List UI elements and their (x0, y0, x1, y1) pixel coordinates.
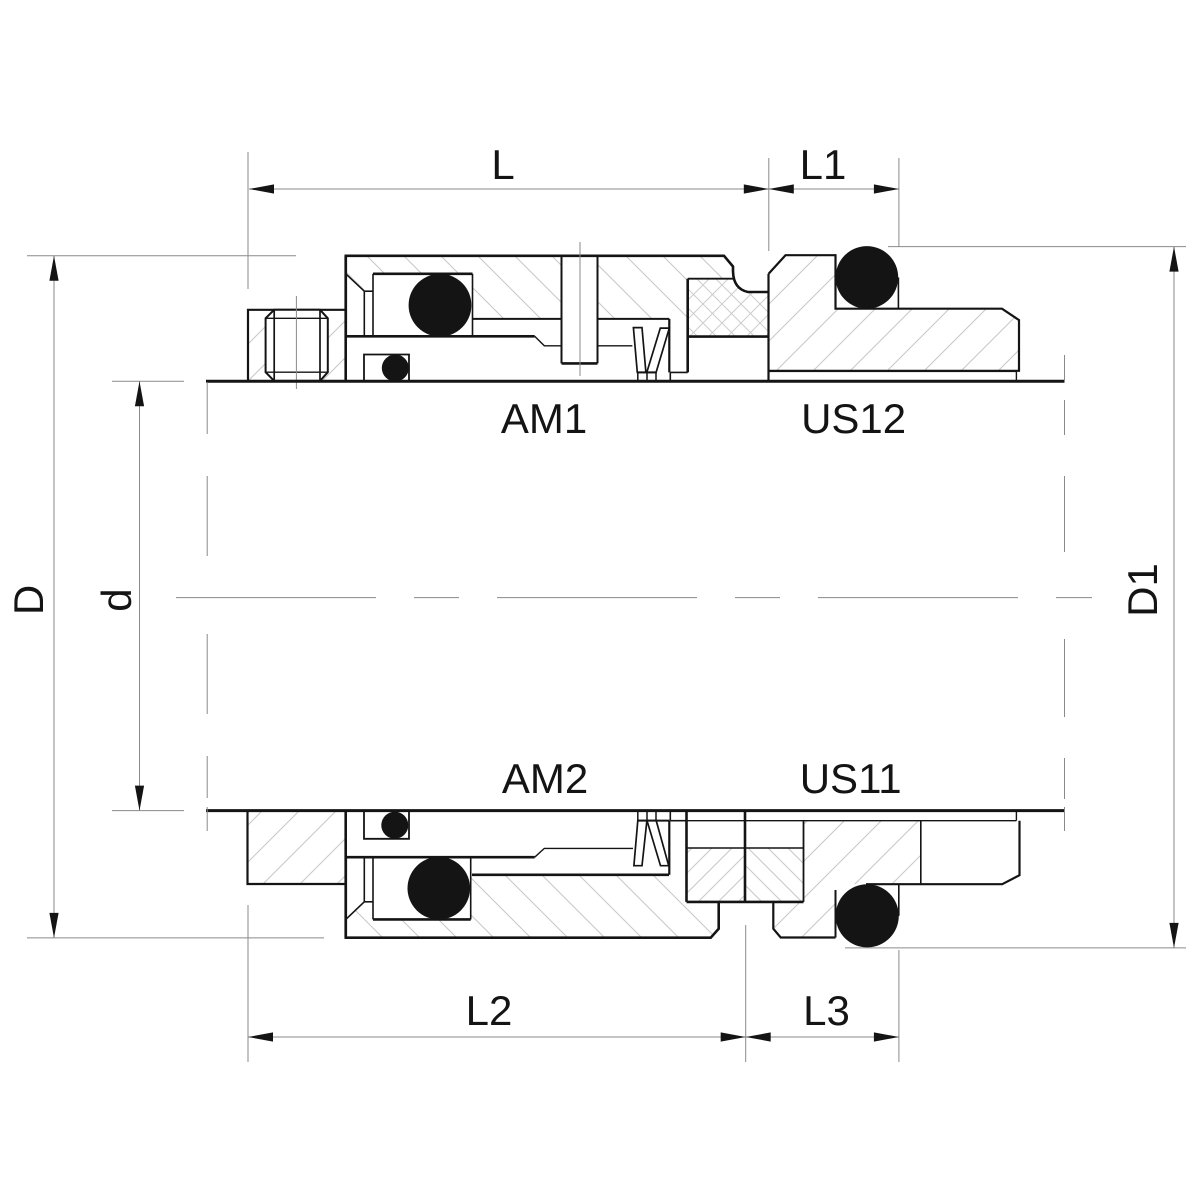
svg-text:L3: L3 (803, 987, 850, 1034)
svg-text:US11: US11 (800, 755, 902, 802)
svg-text:D: D (5, 585, 52, 615)
svg-text:L1: L1 (800, 141, 847, 188)
svg-text:D1: D1 (1119, 563, 1166, 617)
svg-text:L2: L2 (466, 987, 513, 1034)
svg-text:US12: US12 (801, 395, 906, 442)
svg-text:L: L (491, 141, 514, 188)
svg-text:AM1: AM1 (501, 395, 587, 442)
svg-text:d: d (93, 588, 140, 611)
svg-text:AM2: AM2 (502, 755, 588, 802)
